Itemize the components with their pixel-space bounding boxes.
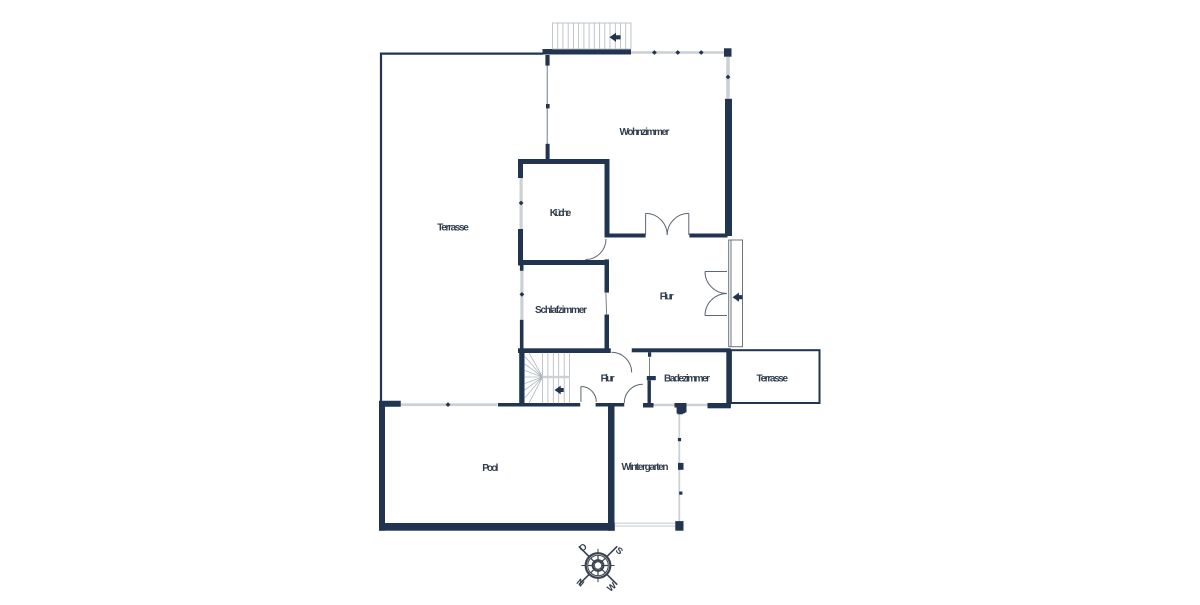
svg-text:Schlafzimmer: Schlafzimmer (535, 305, 587, 316)
svg-text:Wintergarten: Wintergarten (622, 462, 669, 473)
svg-text:O: O (577, 541, 589, 553)
svg-text:W: W (605, 580, 618, 593)
svg-text:Terrasse: Terrasse (757, 374, 789, 385)
svg-text:S: S (614, 545, 625, 557)
svg-text:Badezimmer: Badezimmer (664, 374, 710, 385)
svg-text:Küche: Küche (550, 208, 572, 219)
svg-text:Flur: Flur (601, 374, 615, 385)
svg-text:Terrasse: Terrasse (437, 223, 469, 234)
svg-text:Wohnzimmer: Wohnzimmer (620, 127, 670, 138)
svg-text:Pool: Pool (482, 463, 498, 474)
svg-text:Flur: Flur (660, 292, 674, 303)
svg-text:N: N (575, 577, 587, 589)
